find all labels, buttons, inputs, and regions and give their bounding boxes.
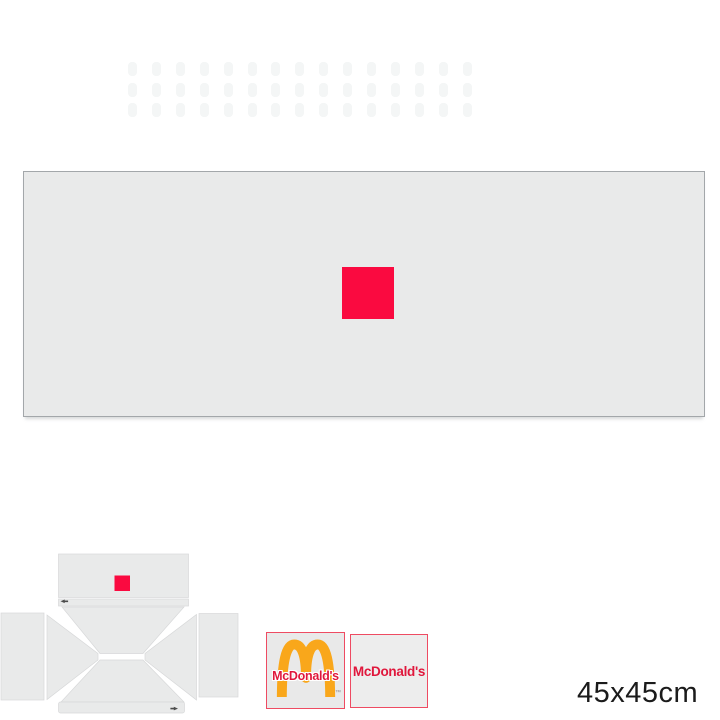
watermark-dash (224, 103, 233, 117)
watermark-dash (415, 62, 424, 76)
dieline-red-square (115, 576, 131, 592)
watermark-dash (271, 103, 280, 117)
watermark-dash (152, 83, 161, 97)
watermark-dash (128, 62, 137, 76)
watermark-dash (248, 103, 257, 117)
watermark-dash (319, 83, 328, 97)
watermark-dash (463, 103, 472, 117)
watermark-dash (200, 103, 209, 117)
watermark-dash (271, 62, 280, 76)
dieline-side-panel-left (1, 613, 44, 700)
watermark-dash (391, 103, 400, 117)
watermark-dash (176, 103, 185, 117)
watermark-dash (200, 83, 209, 97)
logo-swatch-arches: McDonald's ™ (266, 632, 345, 709)
watermark-dash (224, 83, 233, 97)
watermark-dash (343, 103, 352, 117)
mcdonalds-wordmark: McDonald's (267, 669, 344, 683)
size-label: 45x45cm (577, 677, 698, 710)
dieline-fold-band-top (59, 599, 189, 606)
watermark-dash (391, 83, 400, 97)
watermark-dash (152, 62, 161, 76)
watermark-dash (271, 83, 280, 97)
watermark-dash (439, 62, 448, 76)
golden-arches-icon (275, 639, 337, 697)
watermark-dash (295, 103, 304, 117)
trademark-symbol: ™ (335, 690, 341, 696)
watermark-dash (248, 62, 257, 76)
watermark-dash (152, 103, 161, 117)
mcdonalds-wordmark-plain: McDonald's (353, 664, 425, 679)
watermark-dash (343, 83, 352, 97)
dieline-side-panel-right (199, 614, 238, 698)
watermark-dash (295, 62, 304, 76)
watermark-dash (463, 83, 472, 97)
watermark-dash (439, 83, 448, 97)
watermark-dash (295, 83, 304, 97)
watermark-grid (0, 0, 720, 140)
watermark-dash (343, 62, 352, 76)
watermark-dash (128, 103, 137, 117)
watermark-dash (319, 62, 328, 76)
watermark-dash (391, 62, 400, 76)
watermark-dash (224, 62, 233, 76)
watermark-dash (367, 62, 376, 76)
print-area-red-square (342, 267, 394, 319)
watermark-dash (415, 103, 424, 117)
watermark-dash (367, 83, 376, 97)
watermark-dash (463, 62, 472, 76)
watermark-dash (415, 83, 424, 97)
watermark-dash (176, 62, 185, 76)
watermark-dash (176, 83, 185, 97)
watermark-dash (439, 103, 448, 117)
watermark-dash (200, 62, 209, 76)
watermark-dash (248, 83, 257, 97)
napkin-preview-panel (23, 171, 705, 417)
watermark-dash (319, 103, 328, 117)
watermark-dash (367, 103, 376, 117)
watermark-dash (128, 83, 137, 97)
dieline-bottom-band (59, 702, 185, 713)
dieline-template-diagram (0, 548, 242, 720)
logo-swatch-wordmark: McDonald's (350, 634, 428, 708)
